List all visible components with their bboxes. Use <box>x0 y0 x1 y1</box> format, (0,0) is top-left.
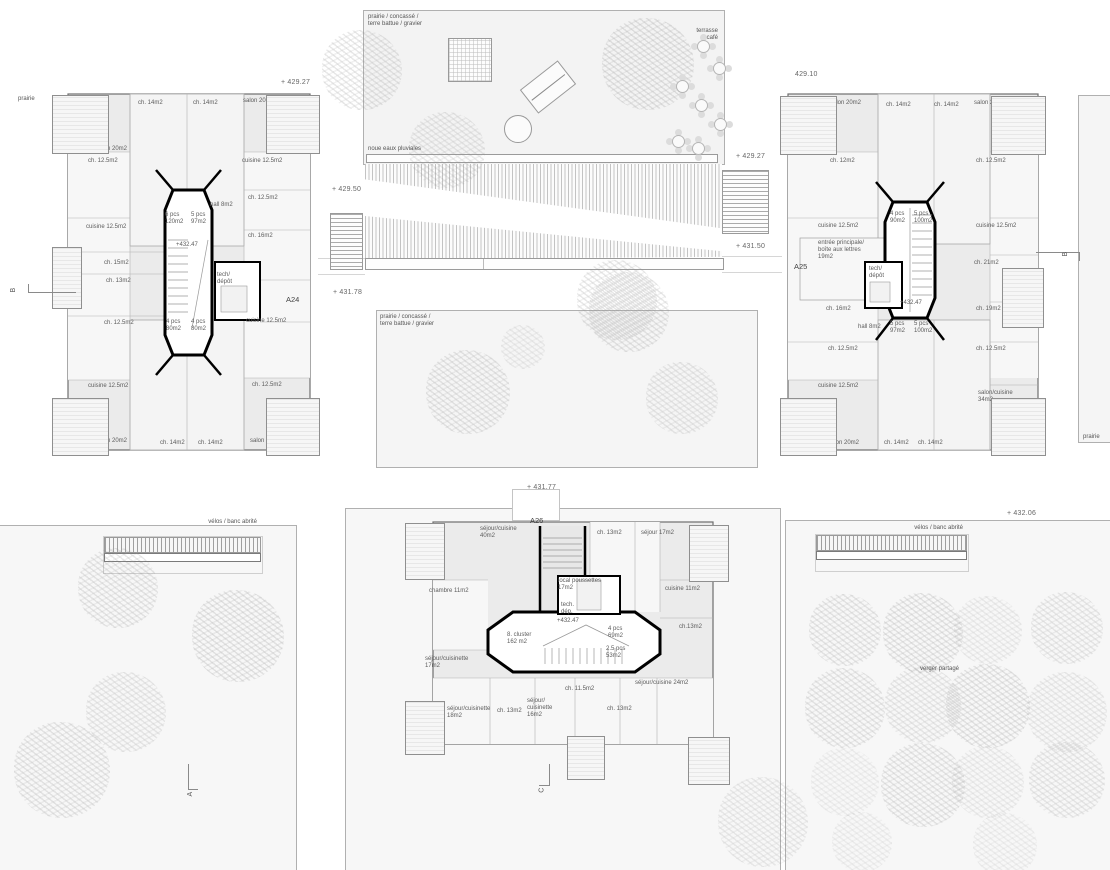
shelter-bench <box>816 551 967 560</box>
floorplan-a26 <box>425 518 721 770</box>
room-label: tech. dép. <box>561 602 574 616</box>
room-label: 5 pcs 100m2 <box>914 321 932 335</box>
cafe-table-icon <box>695 99 708 112</box>
cafe-table-icon <box>676 80 689 93</box>
room-label: 4 pcs 80m2 <box>191 319 206 333</box>
room-label: tech/ dépôt <box>217 272 232 286</box>
stairs-right <box>722 170 769 234</box>
room-label: ch. 12m2 <box>830 158 855 165</box>
balcony <box>405 701 445 755</box>
cafe-table-icon <box>692 142 705 155</box>
room-label: ch. 12.5m2 <box>976 346 1006 353</box>
tree-icon <box>1029 742 1105 818</box>
room-label: séjour 17m2 <box>641 530 674 537</box>
section-letter: A <box>187 792 195 797</box>
room-label: 4 pcs 69m2 <box>608 626 623 640</box>
room-label: 5 pcs 100m2 <box>914 211 932 225</box>
room-label: ch. 16m2 <box>248 233 273 240</box>
balcony <box>52 95 109 154</box>
room-label: ch. 13m2 <box>597 530 622 537</box>
room-label: séjour/ cuisinette 16m2 <box>527 698 552 720</box>
cafe-table-icon <box>672 135 685 148</box>
site-label: terrasse café <box>660 28 718 42</box>
room-label: cuisine 12.5m2 <box>818 223 858 230</box>
section-line-c-tick <box>539 785 550 786</box>
tree-icon <box>952 746 1024 818</box>
room-label: ch. 14m2 <box>198 440 223 447</box>
tree-icon <box>426 350 510 434</box>
room-label: séjour/cuisinette 17m2 <box>425 656 468 670</box>
balcony <box>780 398 837 456</box>
room-label: ch. 19m2 <box>976 306 1001 313</box>
room-label: tech/ dépôt <box>869 266 884 280</box>
room-label: cuisine 11m2 <box>665 586 700 593</box>
room-label: ch. 14m2 <box>884 440 909 447</box>
site-plan: balcon 13m2ch. 14m2ch. 14m2salon 20m2bal… <box>0 0 1110 870</box>
room-label: ch. 12.5m2 <box>252 382 282 389</box>
site-label: + 431.77 <box>527 484 556 492</box>
room-label: ch. 14m2 <box>160 440 185 447</box>
ramp-lower-hatch <box>365 216 722 260</box>
section-line-a <box>188 764 189 790</box>
section-letter: B <box>1062 252 1070 257</box>
tree-icon <box>1027 672 1107 752</box>
balcony <box>688 737 730 785</box>
room-label: ch. 21m2 <box>974 260 999 267</box>
room-label: 6 pcs 120m2 <box>165 212 183 226</box>
room-label: ch. 14m2 <box>138 100 163 107</box>
section-line-b-left-tick <box>28 284 29 293</box>
balcony <box>405 523 445 580</box>
tree-icon <box>718 777 808 867</box>
site-label: + 429.27 <box>281 79 310 87</box>
sandbox-grid <box>448 38 492 82</box>
balcony <box>52 398 109 456</box>
site-label: + 431.50 <box>736 243 765 251</box>
room-label: +432.47 <box>176 242 198 249</box>
room-label: 2.5 pcs 53m2 <box>606 646 625 660</box>
site-label: A24 <box>286 295 299 304</box>
site-label: + 431.78 <box>333 289 362 297</box>
room-label: séjour/cuisine 24m2 <box>635 680 688 687</box>
room-label: ch. 15m2 <box>104 260 129 267</box>
cafe-table-icon <box>714 118 727 131</box>
site-label: prairie / concassé / terre battue / grav… <box>380 314 434 328</box>
tree-icon <box>501 325 545 369</box>
balcony <box>780 96 837 155</box>
balcony <box>1002 268 1044 328</box>
site-label: prairie / concassé / terre battue / grav… <box>368 14 422 28</box>
tree-icon <box>832 812 892 870</box>
balcony <box>266 95 320 154</box>
section-line-b-left <box>28 292 76 293</box>
balcony <box>52 247 82 309</box>
play-circle <box>504 115 532 143</box>
room-label: ch. 13m2 <box>106 278 131 285</box>
tree-icon <box>192 590 284 682</box>
room-label: local poussettes 17m2 <box>558 578 601 592</box>
balcony <box>991 96 1046 155</box>
tree-icon <box>646 362 718 434</box>
room-label: hall 8m2 <box>858 324 881 331</box>
site-label: + 429.27 <box>736 153 765 161</box>
walk-line <box>318 274 365 275</box>
cafe-table-icon <box>713 62 726 75</box>
room-label: +432.47 <box>557 618 579 625</box>
room-label: ch. 14m2 <box>886 102 911 109</box>
section-letter: B <box>10 288 18 293</box>
room-label: 8. cluster 162 m2 <box>507 632 531 646</box>
room-label: séjour/cuisinette 18m2 <box>447 706 490 720</box>
section-line-c <box>549 764 550 786</box>
balcony <box>266 398 320 456</box>
bike-shelter-right <box>815 534 969 572</box>
room-label: cuisine 12.5m2 <box>818 383 858 390</box>
ramp-walkway <box>365 258 724 270</box>
section-line-a-tick <box>188 789 198 790</box>
site-label: noue eaux pluviales <box>368 146 421 153</box>
room-label: 4 pcs 80m2 <box>166 319 181 333</box>
room-label: séjour/cuisine 40m2 <box>480 526 517 540</box>
site-label: vélos / banc abrité <box>873 525 963 532</box>
room-label: entrée principale/ boîte aux lettres 19m… <box>818 240 864 262</box>
building-a26: balcon 14m2séjour/cuisine 40m2ch. 13m2sé… <box>425 518 721 770</box>
site-label: A26 <box>530 516 543 525</box>
room-label: hall 8m2 <box>210 202 233 209</box>
room-label: cuisine 12.5m2 <box>246 318 286 325</box>
site-label: verger partagé <box>920 666 959 673</box>
room-label: +432.47 <box>900 300 922 307</box>
room-label: ch. 14m2 <box>934 102 959 109</box>
room-label: cuisine 12.5m2 <box>242 158 282 165</box>
walk-line <box>722 256 782 257</box>
site-label: A25 <box>794 262 807 271</box>
room-label: ch. 12.5m2 <box>104 320 134 327</box>
room-label: 5 pcs 97m2 <box>191 212 206 226</box>
section-letter: C <box>538 788 546 793</box>
room-label: ch. 13m2 <box>607 706 632 713</box>
tree-icon <box>809 594 881 666</box>
balcony <box>567 736 605 780</box>
room-label: chambre 11m2 <box>429 588 469 595</box>
tree-icon <box>1031 592 1103 664</box>
site-label: prairie <box>18 96 35 103</box>
tree-icon <box>883 593 963 673</box>
room-label: ch. 12.5m2 <box>88 158 118 165</box>
site-label: vélos / banc abrité <box>167 519 257 526</box>
site-label: + 429.50 <box>332 186 361 194</box>
site-label: 429.10 <box>795 71 818 79</box>
tree-icon <box>954 596 1022 664</box>
tree-icon <box>589 272 669 352</box>
tree-icon <box>973 813 1037 870</box>
room-label: 5 pcs 97m2 <box>890 321 905 335</box>
prairie-strip-right <box>1078 95 1110 443</box>
room-label: ch. 12.5m2 <box>828 346 858 353</box>
room-label: ch. 12.5m2 <box>248 195 278 202</box>
room-label: ch.13m2 <box>679 624 702 631</box>
room-label: ch. 14m2 <box>193 100 218 107</box>
tree-icon <box>322 30 402 110</box>
room-label: cuisine 12.5m2 <box>976 223 1016 230</box>
room-label: ch. 16m2 <box>826 306 851 313</box>
walk-line <box>722 272 782 273</box>
site-label: prairie <box>1083 434 1100 441</box>
tree-icon <box>811 748 879 816</box>
room-label: 4 pcs 90m2 <box>890 211 905 225</box>
tree-icon <box>946 664 1030 748</box>
room-label: ch. 12.5m2 <box>976 158 1006 165</box>
stairs-left <box>330 213 363 270</box>
tree-icon <box>78 548 158 628</box>
shelter-roof <box>816 535 967 551</box>
room-label: ch. 13m2 <box>497 708 522 715</box>
tree-icon <box>805 668 885 748</box>
balcony <box>991 398 1046 456</box>
room-label: ch. 11.5m2 <box>565 686 594 693</box>
tree-icon <box>14 722 110 818</box>
section-line-b-right <box>1036 252 1080 253</box>
room-label: cuisine 12.5m2 <box>88 383 128 390</box>
section-line-b-right-tick <box>1079 252 1080 261</box>
room-label: ch. 14m2 <box>918 440 943 447</box>
room-label: cuisine 12.5m2 <box>86 224 126 231</box>
site-label: + 432.06 <box>1007 510 1036 518</box>
balcony <box>689 525 729 582</box>
